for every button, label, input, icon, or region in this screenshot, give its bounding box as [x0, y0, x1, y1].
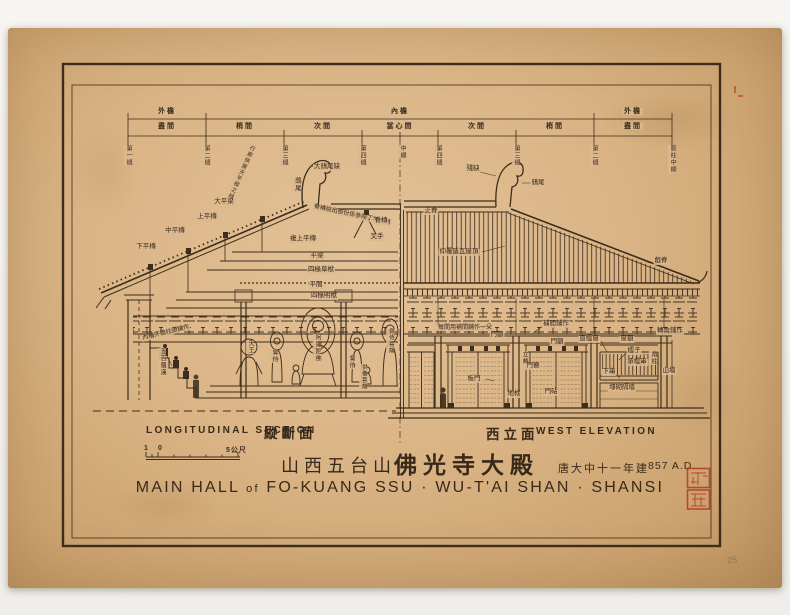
annotation-label: 鴟尾: [531, 180, 546, 187]
annotation-label: 下平槫: [135, 244, 157, 251]
axis-line-label: 第二縫: [590, 145, 598, 166]
annotation-label: 四椽草栿: [307, 267, 335, 274]
annotation-label: 脅侍菩薩: [386, 328, 394, 354]
label-overlay: 外檐內檐外檐盡間梢間次間當心間次間梢間盡間第一縫第二縫行廊挾屋天平樑之縫第三縫第…: [0, 0, 790, 615]
annotation-label: 叉手: [370, 234, 385, 241]
annotation-label: 補間鋪作: [542, 321, 570, 328]
annotation-label: 上平槫: [196, 214, 218, 221]
pencil-margin-note: 25: [727, 555, 738, 566]
axis-line-label: 中線: [398, 145, 406, 159]
dimension-span-label: 內檐: [390, 108, 410, 115]
annotation-label: 窗額: [620, 336, 635, 343]
red-seal: [686, 467, 711, 511]
annotation-label: 直櫺窗: [578, 336, 600, 343]
scale-bar-one: 1: [144, 445, 149, 452]
annotation-label: 塼砌隔墻: [608, 385, 636, 392]
title-location-zh: 山西五台山: [281, 452, 396, 478]
title-main-en-part2: FO-KUANG SSU · WU-T'AI SHAN · SHANSI: [266, 479, 664, 496]
axis-line-label: 第三縫: [512, 145, 520, 166]
annotation-label: 五百羅漢: [158, 348, 166, 376]
annotation-label: 門砧: [544, 389, 559, 396]
scanned-drawing-page: 外檐內檐外檐盡間梢間次間當心間次間梢間盡間第一縫第二縫行廊挾屋天平樑之縫第三縫第…: [0, 0, 790, 615]
dimension-bay-label: 盡間: [157, 123, 177, 130]
annotation-label: 正脊: [424, 208, 439, 215]
annotation-label: 中平槫: [164, 228, 186, 235]
dimension-bay-label: 當心間: [386, 123, 415, 130]
annotation-label: 脅侍: [347, 355, 355, 369]
annotation-label: 承櫺串: [626, 359, 648, 366]
annotation-label: 角柱: [649, 351, 657, 365]
red-registration-mark: [734, 86, 736, 93]
annotation-label: 戧脊: [654, 258, 669, 265]
annotation-label: 供養菩薩: [359, 364, 367, 390]
annotation-label: 門額: [490, 332, 505, 339]
dimension-bay-label: 次間: [313, 123, 333, 130]
annotation-label: 下串: [602, 369, 617, 376]
axis-line-label: 第一縫: [124, 145, 132, 166]
annotation-label: 大平梁: [213, 199, 235, 206]
dimension-bay-label: 盡間: [623, 123, 643, 130]
annotation-label: 阿彌陀佛: [313, 334, 321, 362]
title-date-zh: 唐大中十一年建: [558, 460, 649, 476]
axis-line-label: 第四縫: [358, 145, 366, 166]
dimension-span-label: 外檐: [623, 108, 643, 115]
dimension-bay-label: 次間: [467, 123, 487, 130]
annotation-label: 山墻: [662, 368, 677, 375]
annotation-label: 天王: [246, 340, 254, 354]
axis-line-label: 第二縫: [202, 145, 210, 166]
axis-line-label: 第三縫: [280, 145, 288, 166]
red-registration-mark: [738, 95, 743, 97]
annotation-label: 殘缺: [466, 166, 481, 173]
title-main-en-part1: MAIN HALL: [136, 479, 240, 496]
dimension-bay-label: 梢間: [235, 123, 255, 130]
annotation-label: 大鴟尾缺: [313, 164, 341, 171]
annotation-label: 內槽外檐柱頭鋪作: [141, 324, 191, 342]
title-main-en: MAIN HALL of FO-KUANG SSU · WU-T'AI SHAN…: [136, 479, 664, 497]
annotation-label: 平梁: [310, 253, 325, 260]
annotation-label: 脊槫: [374, 218, 389, 225]
scale-bar-zero: 0: [158, 445, 163, 452]
annotation-label: 每間用補間鋪作一朵: [437, 325, 493, 331]
annotation-label: 鴟尾: [292, 177, 301, 192]
annotation-label: 四椽明栿: [310, 293, 338, 300]
title-hall-name-zh: 佛光寺大殿: [394, 446, 539, 480]
axis-line-label: 第四縫: [434, 145, 442, 166]
title-main-en-of: of: [246, 483, 260, 495]
caption-elevation-en: WEST ELEVATION: [536, 426, 657, 437]
scale-bar-five-meters: 5公尺: [226, 445, 247, 455]
dimension-bay-label: 梢間: [545, 123, 565, 130]
annotation-label: 轉角鋪作: [656, 328, 684, 335]
annotation-label: 櫺子: [627, 348, 642, 355]
dimension-span-label: 外檐: [157, 108, 177, 115]
annotation-label: 地栿: [507, 391, 522, 398]
caption-elevation-zh: 西立面: [486, 423, 539, 443]
annotation-label: 門簪: [526, 363, 541, 370]
annotation-label: 脅侍: [270, 349, 278, 363]
annotation-label: 平闇: [309, 282, 324, 289]
annotation-label: 複上平槫: [289, 236, 317, 243]
axis-line-label: 行廊挾屋天平樑之縫: [225, 143, 256, 200]
caption-section-zh: 縱斷面: [264, 422, 317, 442]
annotation-label: 仰覆瓪瓦屋頂: [439, 249, 480, 256]
axis-line-label: 簷柱中線: [668, 145, 676, 173]
annotation-label: 門額: [550, 339, 565, 346]
annotation-label: 板門: [467, 376, 482, 383]
